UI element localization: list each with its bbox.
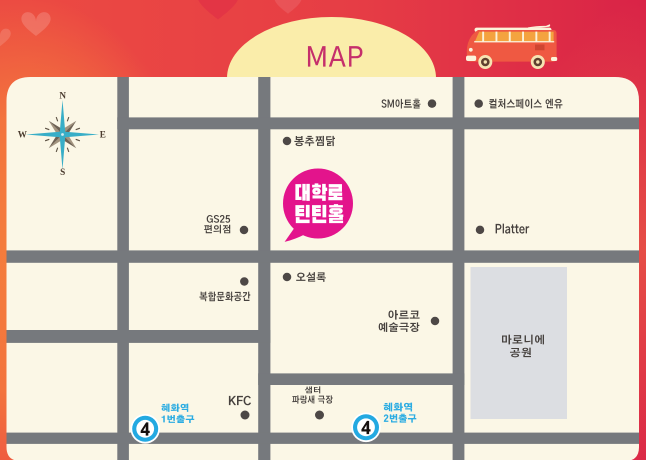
svg-text:W: W xyxy=(18,130,28,140)
svg-text:E: E xyxy=(100,130,106,140)
svg-text:S: S xyxy=(60,167,65,177)
svg-text:N: N xyxy=(59,91,66,101)
